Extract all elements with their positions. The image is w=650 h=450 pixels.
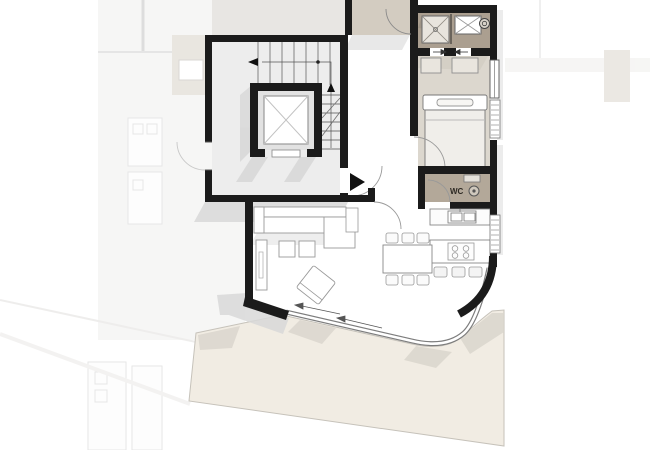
floor-plan-drawing: WC [0,0,650,450]
toilet-icon [464,175,480,182]
armchair [296,265,335,304]
washing-machine-icon [480,19,490,29]
sideboard [256,240,267,290]
side-table [346,208,358,232]
window [490,60,499,98]
living-room [250,207,358,305]
bathroom [418,13,490,50]
stair-guideline-dot [316,60,320,64]
dining-area [383,233,432,285]
bedroom [410,56,490,168]
window-sill [490,215,500,253]
floor-plan: WC [0,0,650,450]
elevator-icon [250,83,322,157]
terrace [189,310,504,446]
elevator-door [272,150,300,157]
kitchen-sink-icon [448,209,476,223]
wc-room: WC [418,166,497,209]
kitchen [430,209,490,277]
sliding-door-wall [410,48,497,56]
kitchen-island [430,240,490,263]
kitchen-counter [430,209,490,225]
curved-corner-wall [459,256,493,314]
exit-arrow-icon [350,173,365,191]
shower-icon [422,16,449,43]
bathtub-icon [455,16,481,34]
floor-drain-icon [469,186,479,196]
door-swing-icon [374,202,401,229]
stairwell [177,35,382,202]
cooktop-icon [448,243,474,260]
wc-label: WC [450,187,464,196]
vestibule [352,0,410,35]
neighbor-structure-top-right [505,0,650,102]
window-sill [490,100,500,138]
bar-stools [434,267,482,277]
dining-table [383,245,432,273]
bed [423,95,487,168]
